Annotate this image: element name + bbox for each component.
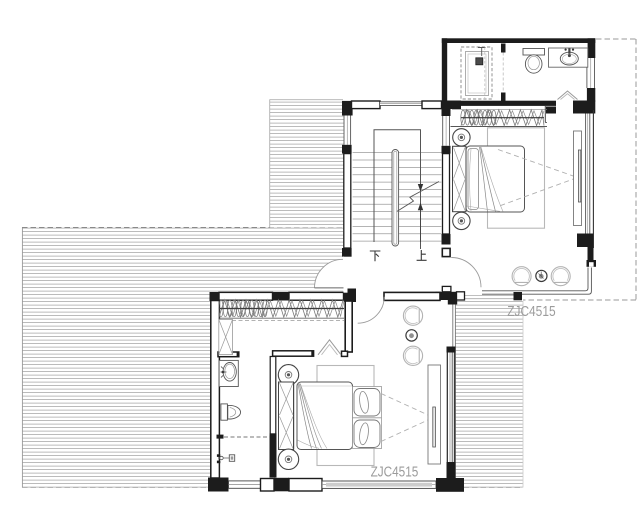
svg-text:ZJC4515: ZJC4515	[371, 464, 419, 481]
svg-text:ZJC4515: ZJC4515	[507, 304, 555, 320]
